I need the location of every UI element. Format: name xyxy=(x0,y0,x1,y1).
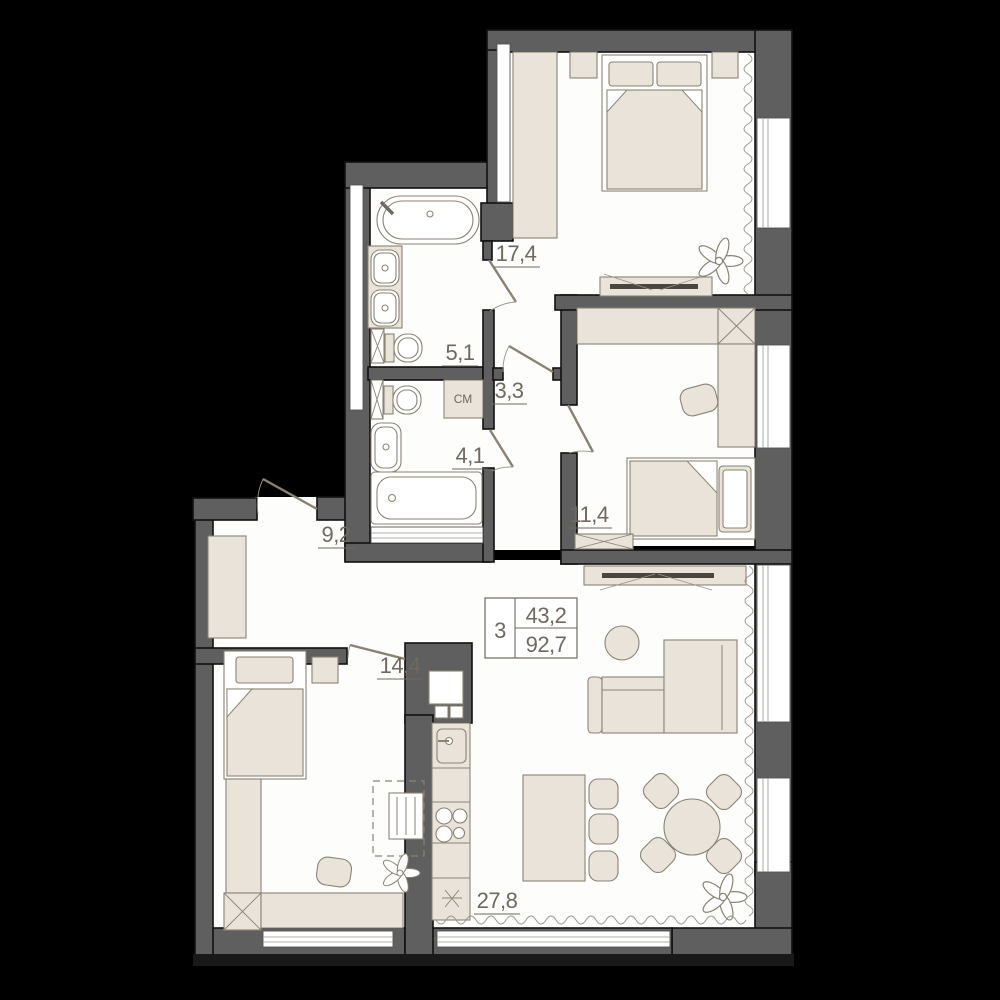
shaft-bathroom xyxy=(350,185,363,410)
floor-plan-canvas: СМ xyxy=(0,0,1000,1000)
vanity-sinks xyxy=(368,246,402,328)
washing-machine: СМ xyxy=(444,380,483,418)
shaft-box xyxy=(371,380,383,419)
toilet xyxy=(384,386,421,414)
bathtub xyxy=(377,196,479,244)
cabinet-x xyxy=(718,308,755,344)
nightstand xyxy=(312,657,338,683)
window-living-lower xyxy=(757,778,790,872)
area-label-hallway: 9,2 xyxy=(321,522,350,547)
wardrobe xyxy=(577,308,718,344)
bar-chairs xyxy=(589,779,618,881)
desk xyxy=(718,344,755,447)
area-label-hall-small: 3,3 xyxy=(494,378,523,403)
window-kitchen xyxy=(437,931,670,947)
wardrobe xyxy=(513,52,557,238)
wardrobe xyxy=(226,779,261,893)
wall-bath-top xyxy=(345,162,495,188)
wardrobe xyxy=(208,536,246,638)
double-bed xyxy=(224,651,306,779)
rooms-count: 3 xyxy=(494,618,506,643)
floor-plan: СМ xyxy=(0,0,1000,1000)
island-table xyxy=(523,775,585,881)
tv-console xyxy=(600,274,712,296)
info-box: 3 43,2 92,7 xyxy=(485,598,577,658)
area-label-wc: 4,1 xyxy=(455,443,484,468)
kitchen-sink xyxy=(437,729,466,763)
living-area: 43,2 xyxy=(526,603,567,628)
dining-table xyxy=(664,799,720,855)
total-area: 92,7 xyxy=(526,632,567,657)
shaft-bedroom xyxy=(497,44,510,202)
area-label-bedroom-second: 11,4 xyxy=(569,502,608,527)
dresser xyxy=(261,893,403,928)
window-wc xyxy=(371,527,483,543)
area-label-kitchen-living: 27,8 xyxy=(477,888,518,913)
washing-machine-label: СМ xyxy=(454,392,473,406)
window-bedroom-second xyxy=(757,345,790,448)
nightstand xyxy=(570,52,597,78)
bathtub xyxy=(371,472,482,524)
room-hallway xyxy=(208,536,246,638)
window-bedroom-third xyxy=(263,931,393,947)
cabinet-x xyxy=(575,534,633,549)
pouf xyxy=(605,626,639,660)
area-label-bedroom-master: 17,4 xyxy=(496,241,537,266)
area-label-bathroom: 5,1 xyxy=(445,340,474,365)
single-bed xyxy=(627,458,755,539)
toilet xyxy=(385,334,422,362)
sink xyxy=(371,423,401,472)
kitchen-counter xyxy=(432,723,470,920)
chair xyxy=(315,856,353,888)
window-bedroom-master xyxy=(757,118,790,228)
area-label-bedroom-third: 14,4 xyxy=(380,653,421,678)
cabinet-x xyxy=(224,893,261,930)
shaft-box xyxy=(371,329,384,363)
window-living-upper xyxy=(757,565,790,722)
double-bed xyxy=(602,55,707,191)
wall-top xyxy=(487,30,792,52)
nightstand xyxy=(712,52,738,78)
